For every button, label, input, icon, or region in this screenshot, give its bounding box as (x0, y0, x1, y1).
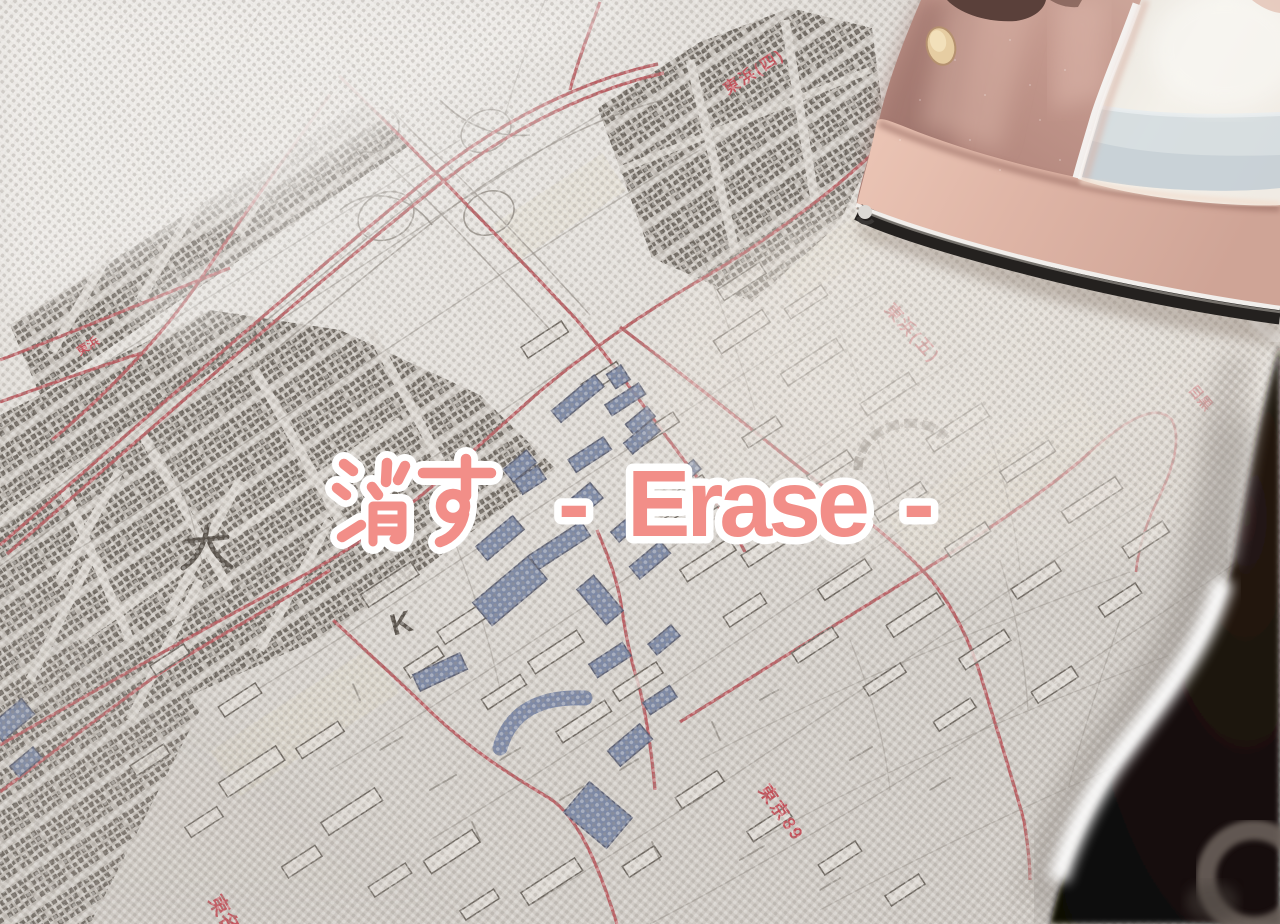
svg-text:-: - (903, 451, 935, 557)
svg-text:Erase: Erase (627, 451, 867, 557)
svg-text:-: - (558, 451, 590, 557)
